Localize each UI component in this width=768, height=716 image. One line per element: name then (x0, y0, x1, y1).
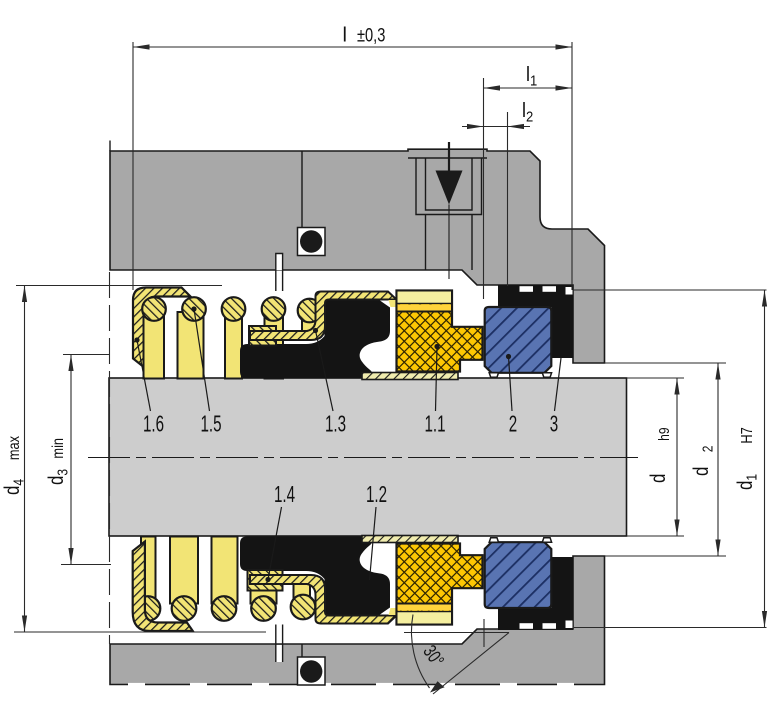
svg-text:1.2: 1.2 (366, 482, 387, 508)
svg-text:1.1: 1.1 (424, 411, 445, 437)
svg-text:±0,3: ±0,3 (357, 23, 385, 46)
svg-text:l: l (343, 25, 347, 47)
svg-text:1.6: 1.6 (143, 411, 164, 437)
svg-text:1.3: 1.3 (325, 411, 346, 437)
svg-text:1.5: 1.5 (200, 411, 221, 437)
svg-text:3: 3 (550, 411, 558, 437)
svg-text:2: 2 (509, 411, 517, 437)
svg-text:1.4: 1.4 (274, 482, 295, 508)
